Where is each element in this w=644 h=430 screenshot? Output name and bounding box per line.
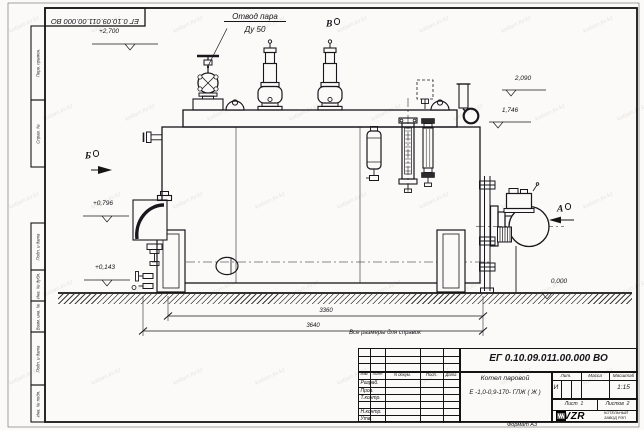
doc-number: ЕГ 0.10.09.011.00.000 ВО — [459, 354, 638, 364]
phantom-fitting — [417, 80, 433, 109]
safety-valve-2 — [318, 40, 342, 110]
product-name-line2: Е -1,0-0,9-170- ГЛЖ ( Ж ) — [459, 390, 551, 396]
scale-header: Масштаб — [609, 374, 638, 379]
sheets-cell: Листов 2 — [597, 402, 638, 407]
leader-line — [207, 29, 227, 69]
row-razrab: Разраб. — [361, 381, 379, 386]
gauge-glass — [422, 119, 435, 187]
top-rotated-doc-number: ЕГ 0.10.09.011.00.000 ВО — [45, 8, 145, 26]
col-data: Дата — [443, 373, 459, 377]
level-gauge-column — [399, 118, 417, 193]
safety-valve-1 — [258, 40, 282, 110]
front-top-valve — [144, 132, 163, 143]
kvzr-logo: KVZR — [556, 411, 585, 422]
dimension-3360: 3360 — [306, 308, 346, 314]
steam-outlet-dn: Ду 50 — [224, 26, 286, 34]
nozzle-hook-pipe — [457, 84, 479, 123]
reference-note: Все размеры для справок — [330, 330, 440, 336]
view-a-index-circle — [565, 203, 572, 210]
frame-box-podp-data-2: Подп. и дата — [36, 332, 41, 385]
manhole — [216, 257, 238, 274]
frame-box-vzam-inv: Взам. инв. № — [36, 301, 41, 332]
elevation-0000: 0,000 — [536, 279, 582, 286]
row-prov: Пров. — [361, 389, 374, 394]
row-utv: Утв. — [361, 417, 372, 422]
view-b-index-circle — [93, 150, 100, 157]
row-tkontr: Т.контр. — [361, 396, 381, 401]
frame-box-inv-podl: Инв. № подл. — [36, 385, 41, 422]
elevation-0796: +0,796 — [80, 201, 126, 208]
row-nkontr: Н.контр. — [361, 410, 382, 415]
steam-outlet-label: Отвод пара — [224, 13, 286, 22]
company-name: КОТЕЛЬНЫЙ ЗАВОД РЭП — [604, 411, 628, 420]
burner — [491, 183, 550, 292]
col-podp: Подп. — [420, 373, 443, 377]
sheet-cell: Лист 1 — [551, 402, 597, 407]
view-marker-a: А — [557, 203, 571, 215]
ground-hatch — [58, 294, 632, 304]
view-marker-b: Б — [85, 150, 99, 162]
cylinder-fitting — [366, 127, 381, 181]
rear-pipe — [480, 176, 496, 293]
dimension-3640: 3640 — [293, 323, 333, 329]
drawing-sheet: kotlam.kv.kzkotlam.kv.kzkotlam.kv.kzkotl… — [0, 0, 644, 430]
elbow-pipe-box — [133, 192, 172, 241]
product-name-line1: Котел паровой — [459, 376, 551, 383]
view-marker-v: В — [326, 18, 340, 30]
boiler-body — [152, 98, 564, 283]
elevation-2090: 2,090 — [500, 76, 546, 83]
frame-box-sprav-no: Справ. № — [36, 100, 41, 167]
format-note: Формат А3 — [482, 423, 562, 429]
lit-header: Лит. — [551, 374, 581, 379]
elevation-2700: +2,700 — [86, 29, 132, 36]
lit-value: И — [551, 385, 561, 392]
frame-box-perv-primen: Перв. примен. — [36, 26, 41, 100]
col-list: Лист — [370, 373, 385, 377]
mass-header: Масса — [581, 374, 609, 379]
view-v-index-circle — [334, 18, 341, 25]
elevation-0143: +0,143 — [82, 265, 128, 272]
title-block: ЕГ 0.10.09.011.00.000 ВО Котел паровой Е… — [358, 348, 637, 422]
kvzr-logo-coil-icon — [556, 411, 566, 421]
elevation-1746: 1,746 — [487, 108, 533, 115]
frame-box-podp-data-1: Подп. и дата — [36, 223, 41, 270]
col-izm: Изм. — [359, 373, 370, 377]
scale-value: 1:15 — [609, 385, 638, 392]
steam-outlet-valve — [197, 56, 219, 99]
col-doc: N докум. — [385, 373, 420, 377]
frame-box-inv-dubl: Инв. № дубл. — [36, 270, 41, 301]
